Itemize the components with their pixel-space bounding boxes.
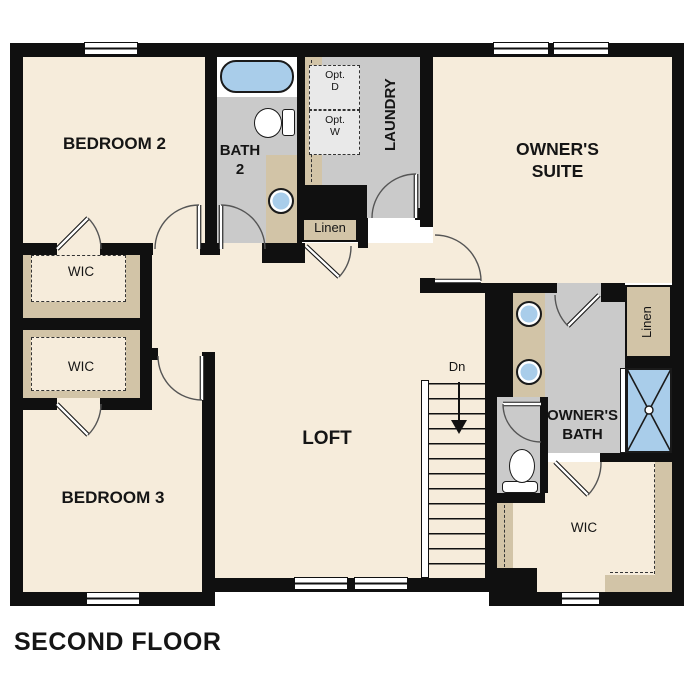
door-laundry (372, 174, 416, 218)
door-owners-wic (555, 462, 601, 495)
room-label-bedroom3: BEDROOM 3 (43, 488, 183, 508)
door-linen-hall (306, 246, 351, 277)
door-wic2 (57, 404, 101, 435)
door-owners-bath (555, 295, 599, 326)
door-owners-suite (435, 235, 481, 281)
room-label-owners-bath: OWNER'S BATH (535, 406, 630, 444)
room-label-wic2: WIC (56, 360, 106, 375)
door-bath2 (221, 205, 265, 249)
label-opt-dryer: Opt. D (321, 70, 349, 93)
room-label-owners-suite: OWNER'S SUITE (490, 138, 625, 182)
room-label-owners-wic: WIC (559, 521, 609, 536)
label-opt-washer: Opt. W (321, 115, 349, 138)
door-bedroom3-entry (158, 356, 202, 400)
room-label-wic1: WIC (56, 265, 106, 280)
room-label-loft: LOFT (297, 428, 357, 450)
door-bedroom2-entry (155, 205, 199, 249)
room-label-laundry: LAUNDRY (382, 62, 408, 167)
label-stairs-down: Dn (443, 360, 471, 374)
plan-title: SECOND FLOOR (14, 628, 221, 657)
shower-x-pattern (627, 369, 671, 452)
room-label-bath2: BATH 2 (214, 141, 266, 179)
label-linen-bath: Linen (640, 294, 660, 350)
label-linen-hall: Linen (302, 221, 358, 235)
stairs-down-arrow (451, 382, 467, 434)
plan-linework (0, 0, 687, 687)
room-label-bedroom2: BEDROOM 2 (47, 134, 182, 154)
floor-plan: BEDROOM 2 BATH 2 LAUNDRY OWNER'S SUITE O… (0, 0, 687, 687)
door-bedroom2-wic (57, 218, 101, 249)
